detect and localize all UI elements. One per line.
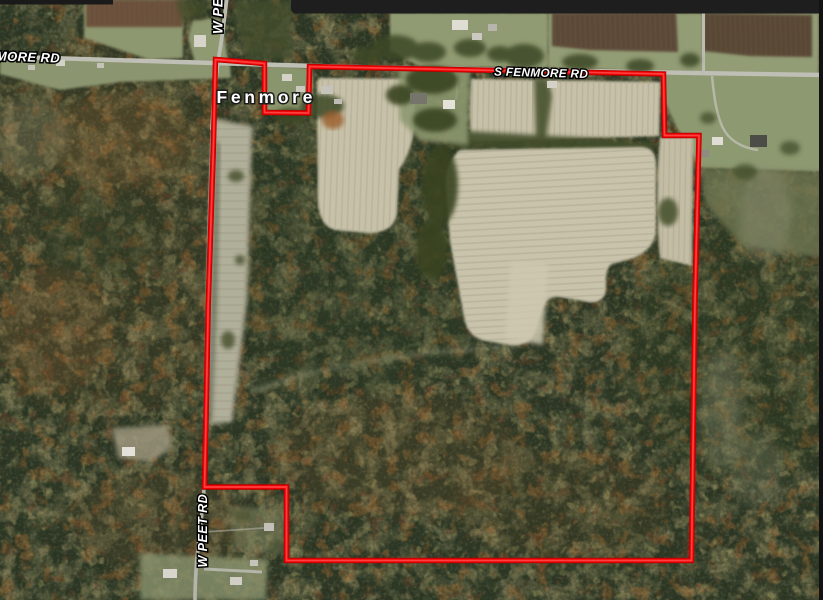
svg-text:S FENMORE RD: S FENMORE RD	[494, 65, 589, 81]
svg-text:W PEET RD: W PEET RD	[196, 494, 210, 568]
svg-text:NMORE RD: NMORE RD	[0, 48, 61, 66]
svg-text:Fenmore: Fenmore	[217, 87, 317, 107]
svg-text:W PEET: W PEET	[211, 0, 226, 34]
